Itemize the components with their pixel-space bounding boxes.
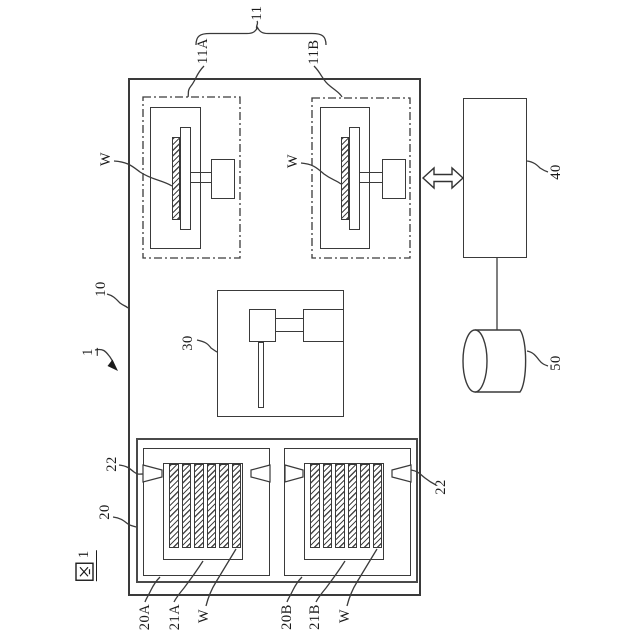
label-housing: 10 — [94, 281, 109, 297]
storage-cylinder-cap — [463, 330, 487, 392]
label-process-unit-b: 11B — [307, 39, 322, 64]
leader-wafer-a2 — [206, 549, 236, 606]
label-carrier-b: 20B — [280, 604, 295, 630]
detector-nozzle-a-left — [143, 465, 162, 482]
patent-figure: 11 11A 11B W W 10 1 30 40 50 22 22 20 20… — [0, 0, 640, 640]
detector-nozzle-a-right — [251, 465, 270, 482]
leader-20a — [145, 577, 160, 602]
leader-20b — [287, 577, 302, 602]
label-apparatus: 1 — [80, 348, 98, 356]
unit-a-dashed-boundary — [143, 97, 240, 258]
leader-21a — [174, 561, 203, 602]
label-controller: 40 — [549, 164, 564, 180]
label-wafer-b2: W — [338, 609, 353, 623]
apparatus-arrowhead — [108, 360, 119, 372]
label-carrier-a: 20A — [138, 604, 153, 630]
label-rack-b: 21B — [308, 604, 323, 630]
label-wafer-b: W — [286, 154, 301, 168]
leader-50 — [527, 351, 548, 366]
label-process-group: 11 — [250, 6, 265, 21]
leader-10 — [107, 294, 128, 308]
label-storage: 50 — [549, 355, 564, 371]
label-transfer-unit: 30 — [181, 335, 196, 351]
detector-nozzle-b-left — [285, 465, 303, 482]
leader-wafer-b2 — [347, 549, 377, 606]
label-wafer-a2: W — [197, 609, 212, 623]
zu-kanji-icon — [75, 562, 94, 581]
leader-11b — [314, 66, 342, 97]
leader-30 — [197, 340, 217, 352]
label-wafer-a: W — [99, 152, 114, 166]
figure-caption-number: 1 — [77, 551, 92, 559]
label-process-unit-a: 11A — [196, 38, 211, 64]
label-rack-a: 21A — [168, 604, 183, 630]
leader-11a — [188, 66, 204, 97]
double-arrow — [423, 168, 463, 188]
detector-nozzle-b-right — [392, 465, 411, 482]
leader-21b — [316, 561, 345, 602]
label-detector-right: 22 — [434, 479, 449, 495]
unit-b-dashed-boundary — [312, 98, 410, 258]
label-detector-left: 22 — [105, 456, 120, 472]
leader-20 — [113, 517, 136, 527]
label-loader: 20 — [98, 504, 113, 520]
line-art-layer — [0, 0, 640, 640]
leader-40 — [527, 161, 548, 172]
leader-22-left — [119, 465, 143, 474]
figure-caption: 1 — [75, 551, 97, 582]
leader-wafer-b — [301, 163, 341, 184]
